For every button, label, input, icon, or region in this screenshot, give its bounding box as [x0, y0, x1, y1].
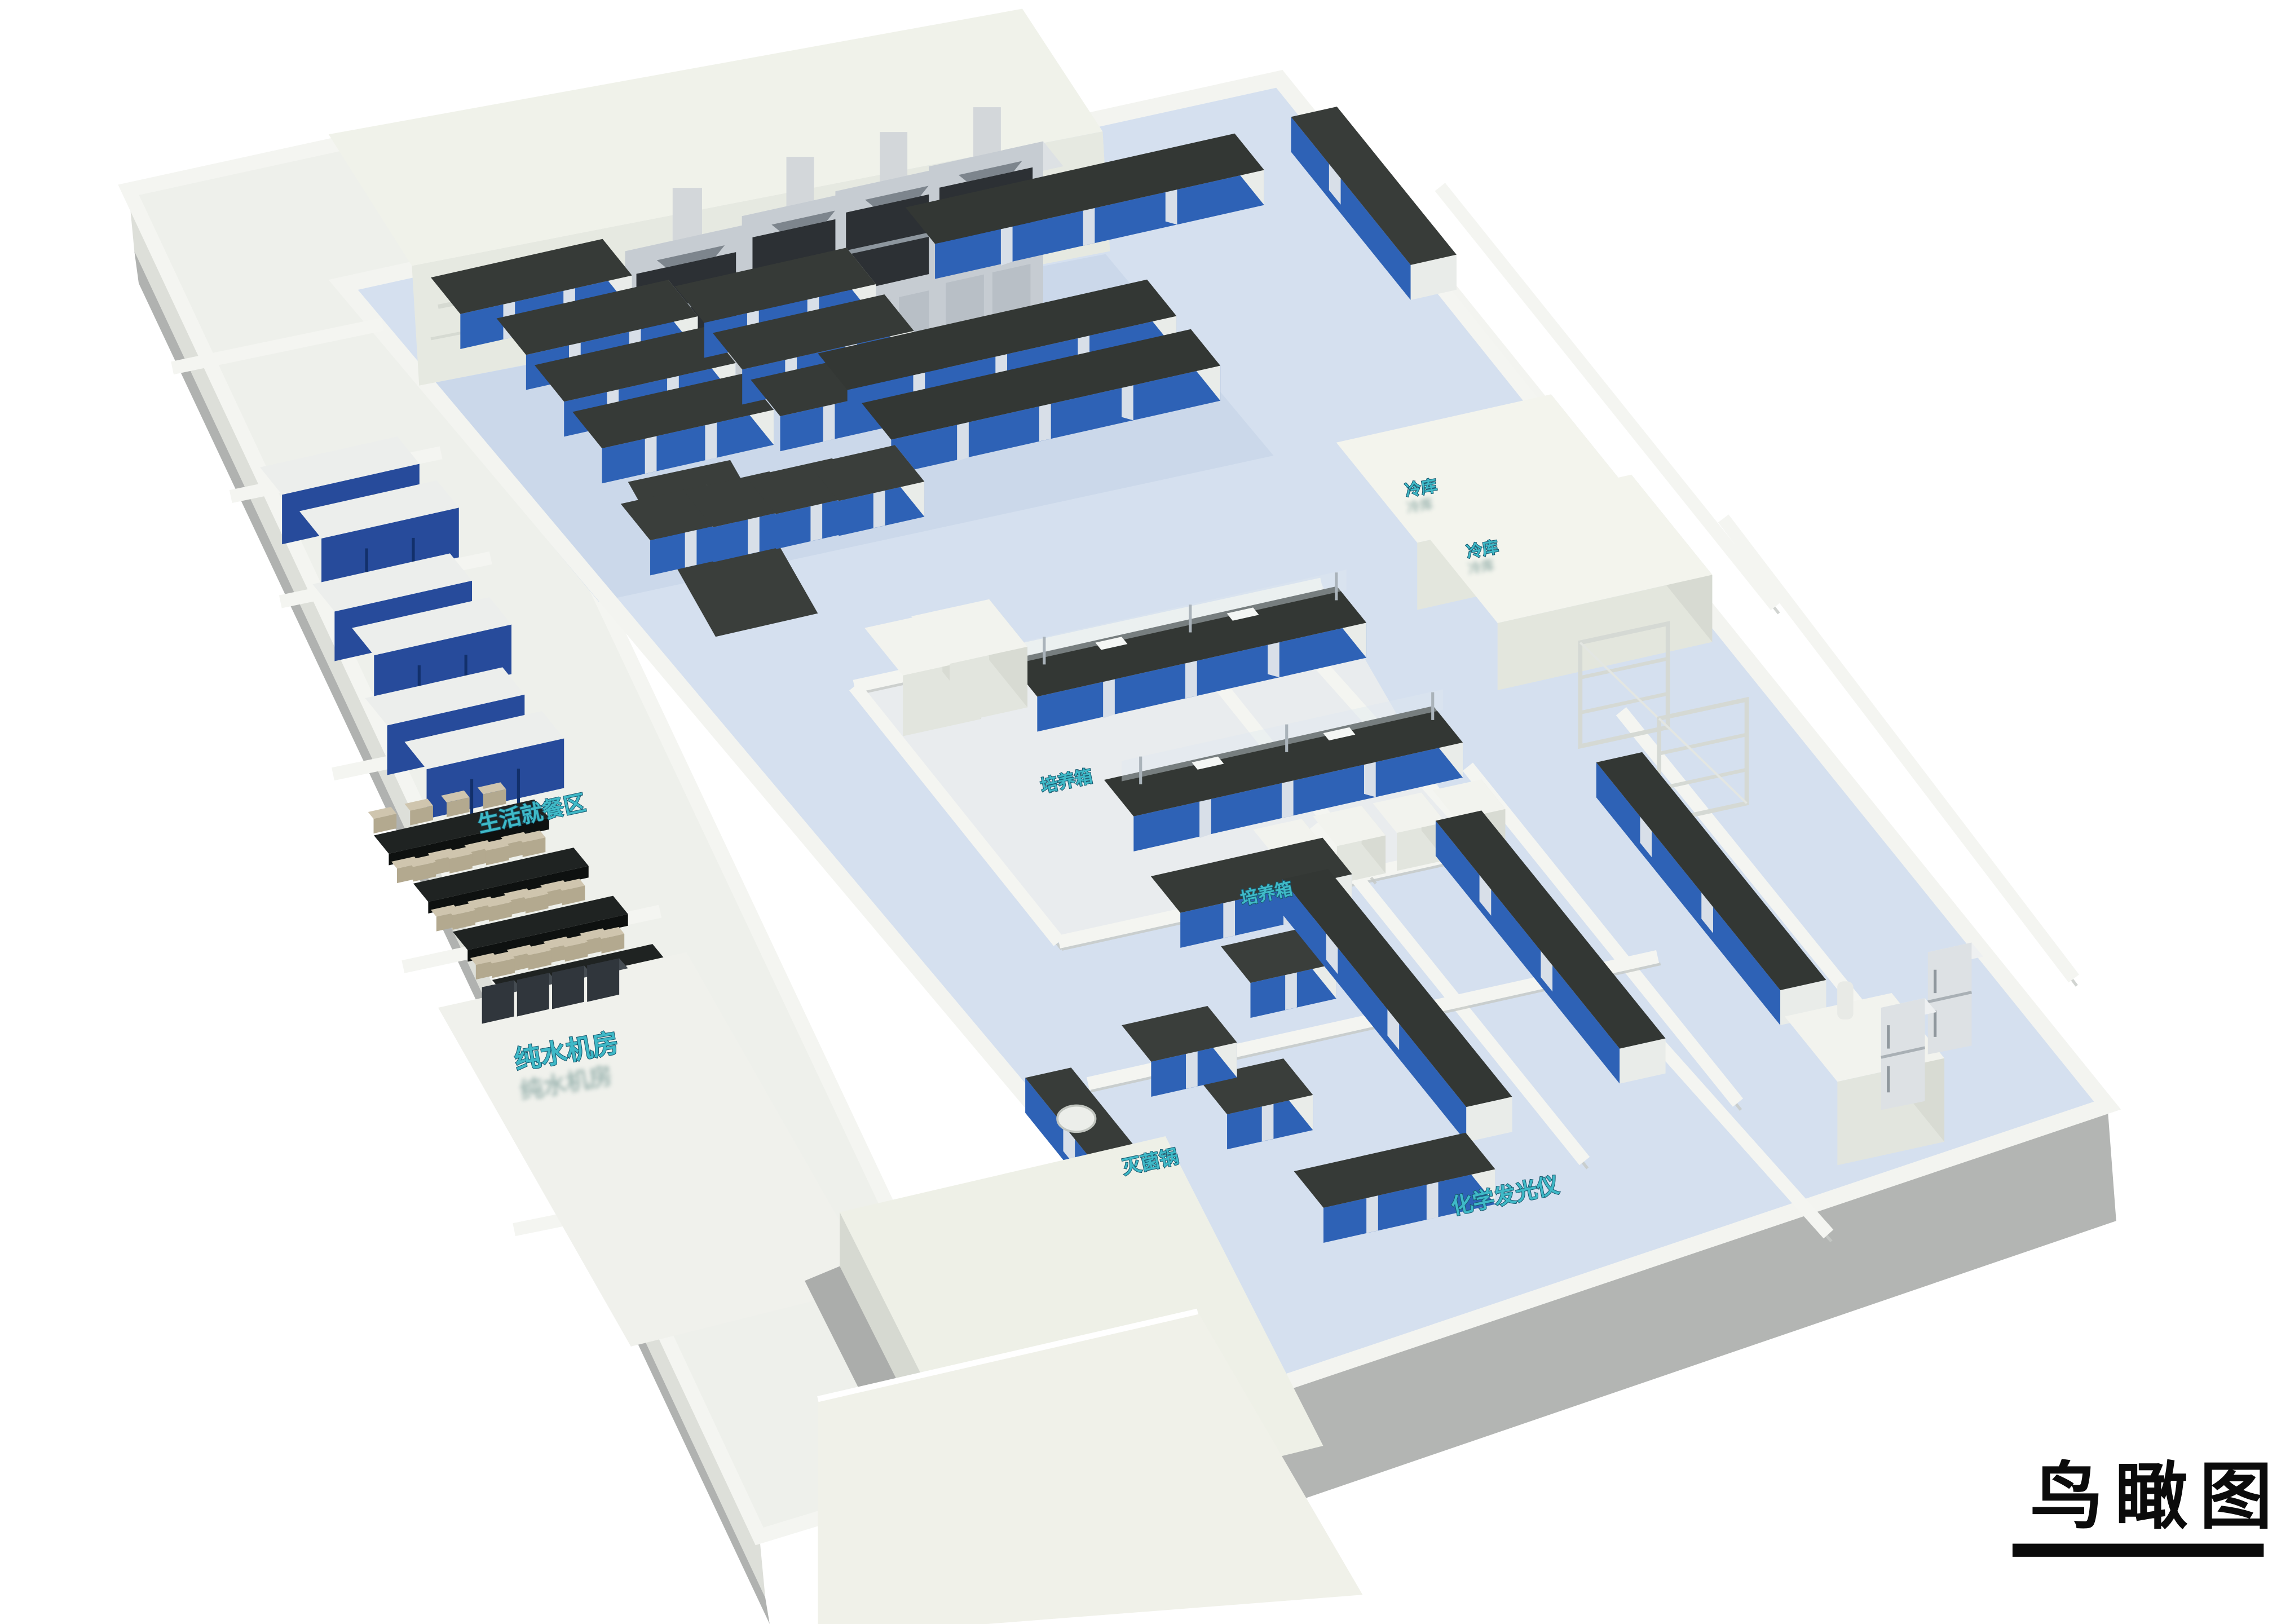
screenshot-canvas: 生活就餐区 纯水机房 纯水机房 培养箱 培养箱 灭菌锅 化学发光仪 冷库 冷库 …	[0, 0, 2290, 1624]
title-block: 鸟瞰图	[2013, 1453, 2284, 1557]
autoclave-unit	[1057, 1106, 1095, 1132]
page-title: 鸟瞰图	[2030, 1453, 2284, 1539]
hood-stack	[1837, 981, 1853, 1019]
title-underline	[2013, 1544, 2263, 1557]
lab-birdseye-rendering: 生活就餐区 纯水机房 纯水机房 培养箱 培养箱 灭菌锅 化学发光仪 冷库 冷库 …	[0, 0, 2290, 1624]
